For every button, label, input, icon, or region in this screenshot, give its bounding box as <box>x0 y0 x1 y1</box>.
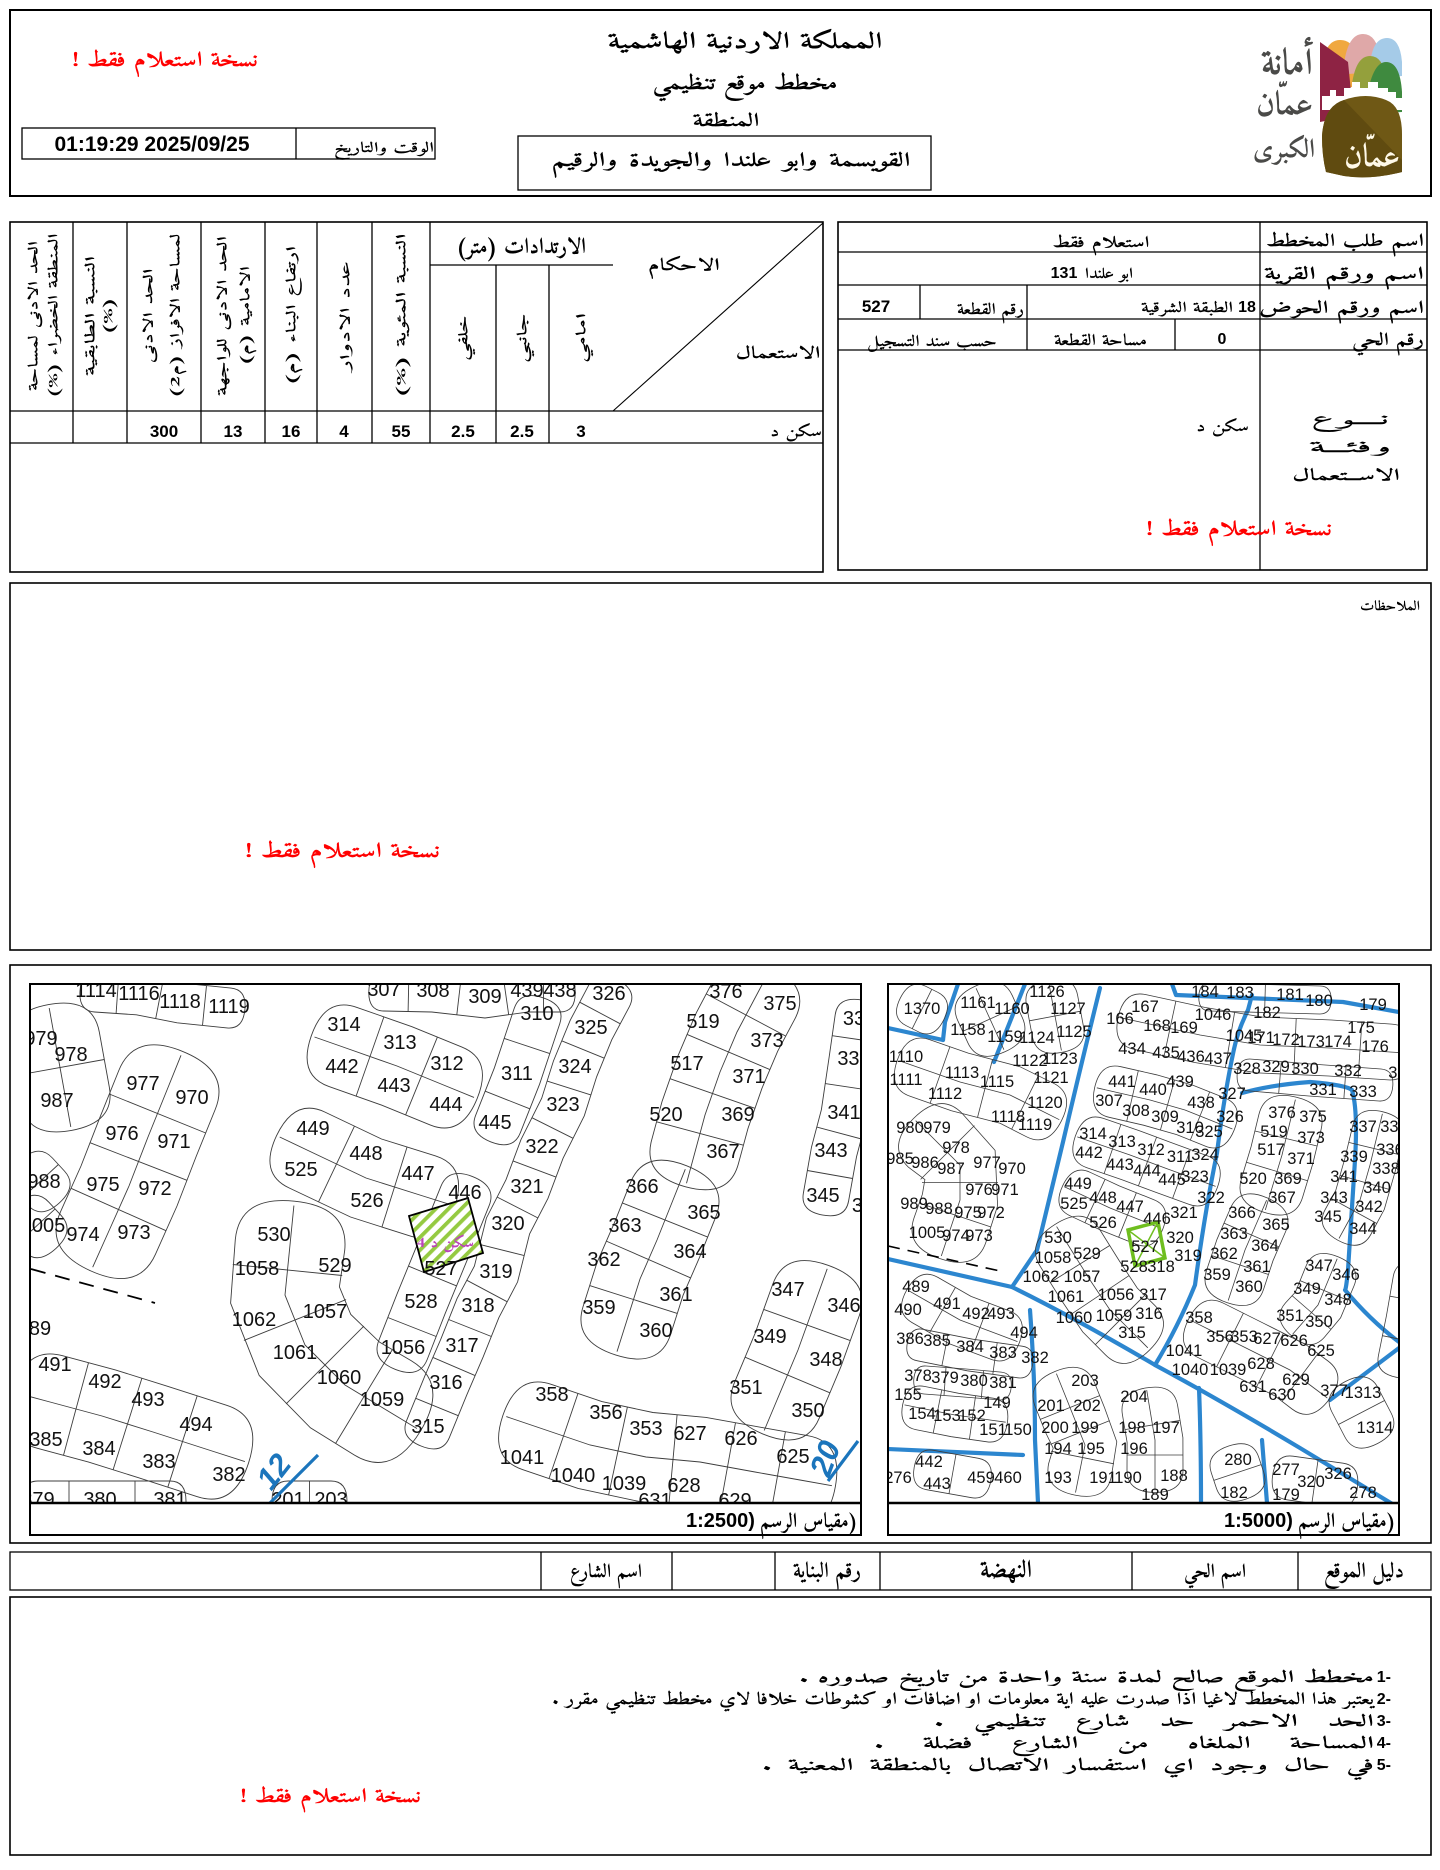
svg-text:309: 309 <box>468 986 501 1008</box>
svg-text:1:2500): 1:2500) <box>686 1510 755 1532</box>
svg-text:184: 184 <box>1191 983 1219 1001</box>
svg-text:327: 327 <box>1218 1085 1246 1103</box>
svg-text:375: 375 <box>763 993 796 1015</box>
svg-text:459: 459 <box>967 1469 995 1487</box>
svg-text:449: 449 <box>1064 1175 1092 1193</box>
svg-text:491: 491 <box>38 1354 71 1376</box>
svg-text:385: 385 <box>29 1429 62 1451</box>
svg-text:314: 314 <box>327 1014 360 1036</box>
svg-text:375: 375 <box>1299 1108 1327 1126</box>
svg-text:3-: 3- <box>1377 1713 1391 1730</box>
svg-text:322: 322 <box>1197 1189 1225 1207</box>
svg-text:337: 337 <box>1349 1118 1377 1136</box>
svg-text:1056: 1056 <box>381 1337 426 1359</box>
svg-text:333: 333 <box>1349 1083 1377 1101</box>
svg-text:316: 316 <box>1135 1305 1163 1323</box>
svg-text:341: 341 <box>1330 1168 1358 1186</box>
svg-text:150: 150 <box>1004 1421 1032 1439</box>
svg-text:525: 525 <box>1060 1195 1088 1213</box>
svg-text:202: 202 <box>1073 1397 1101 1415</box>
svg-text:1040: 1040 <box>1172 1361 1209 1379</box>
svg-text:977: 977 <box>126 1073 159 1095</box>
svg-text:320: 320 <box>491 1213 524 1235</box>
svg-text:347: 347 <box>1305 1257 1333 1275</box>
svg-text:444: 444 <box>429 1094 462 1116</box>
svg-text:976: 976 <box>965 1181 993 1199</box>
svg-text:324: 324 <box>1191 1146 1219 1164</box>
svg-text:1056: 1056 <box>1098 1286 1135 1304</box>
svg-text:1061: 1061 <box>1048 1288 1085 1306</box>
svg-text:196: 196 <box>1120 1440 1148 1458</box>
svg-text:384: 384 <box>82 1438 115 1460</box>
svg-text:166: 166 <box>1106 1010 1134 1028</box>
svg-text:987: 987 <box>40 1090 73 1112</box>
svg-text:631: 631 <box>1239 1378 1267 1396</box>
svg-text:520: 520 <box>649 1104 682 1126</box>
svg-text:987: 987 <box>937 1160 965 1178</box>
svg-text:347: 347 <box>771 1279 804 1301</box>
svg-text:182: 182 <box>1220 1484 1248 1502</box>
svg-text:443: 443 <box>923 1475 951 1493</box>
svg-text:1126: 1126 <box>1029 983 1064 1001</box>
svg-text:530: 530 <box>257 1224 290 1246</box>
svg-text:1125: 1125 <box>1056 1023 1091 1041</box>
svg-text:361: 361 <box>1243 1258 1271 1276</box>
svg-text:526: 526 <box>1089 1214 1117 1232</box>
svg-text:203: 203 <box>1071 1372 1099 1390</box>
svg-text:366: 366 <box>625 1176 658 1198</box>
svg-text:311: 311 <box>1167 1148 1193 1166</box>
svg-text:315: 315 <box>411 1416 444 1438</box>
svg-text:989: 989 <box>900 1195 928 1213</box>
svg-text:310: 310 <box>520 1003 553 1025</box>
svg-text:174: 174 <box>1324 1033 1352 1051</box>
svg-text:189: 189 <box>1141 1486 1169 1504</box>
svg-text:448: 448 <box>349 1143 382 1165</box>
svg-text:312: 312 <box>1137 1141 1165 1159</box>
svg-text:155: 155 <box>894 1386 922 1404</box>
svg-text:358: 358 <box>1185 1309 1213 1327</box>
svg-text:349: 349 <box>753 1326 786 1348</box>
svg-text:365: 365 <box>1262 1216 1290 1234</box>
svg-text:970: 970 <box>998 1160 1026 1178</box>
svg-text:1123: 1123 <box>1042 1050 1077 1068</box>
svg-text:434: 434 <box>1118 1040 1146 1058</box>
svg-text:320: 320 <box>1166 1229 1194 1247</box>
svg-text:360: 360 <box>639 1320 672 1342</box>
svg-text:169: 169 <box>1170 1019 1198 1037</box>
svg-text:1110: 1110 <box>889 1048 923 1066</box>
svg-text:442: 442 <box>1075 1144 1103 1162</box>
svg-text:980: 980 <box>896 1119 924 1137</box>
svg-text:978: 978 <box>942 1139 970 1157</box>
svg-text:195: 195 <box>1077 1440 1105 1458</box>
svg-text:971: 971 <box>991 1181 1019 1199</box>
svg-text:318: 318 <box>461 1295 494 1317</box>
svg-text:436: 436 <box>1177 1048 1205 1066</box>
svg-text:319: 319 <box>1174 1247 1202 1265</box>
svg-text:441: 441 <box>1108 1073 1136 1091</box>
svg-text:190: 190 <box>1114 1469 1142 1487</box>
svg-text:329: 329 <box>1262 1058 1290 1076</box>
svg-text:350: 350 <box>1305 1313 1333 1331</box>
svg-text:191: 191 <box>1089 1469 1117 1487</box>
svg-text:3: 3 <box>576 422 585 441</box>
svg-text:201: 201 <box>1037 1397 1065 1415</box>
svg-text:517: 517 <box>1257 1141 1285 1159</box>
svg-text:492: 492 <box>962 1305 990 1323</box>
svg-text:321: 321 <box>1170 1204 1198 1222</box>
svg-text:318: 318 <box>1147 1258 1175 1276</box>
svg-text:55: 55 <box>392 422 411 441</box>
svg-text:383: 383 <box>989 1344 1017 1362</box>
svg-text:493: 493 <box>131 1389 164 1411</box>
svg-text:179: 179 <box>1272 1486 1300 1504</box>
svg-text:179: 179 <box>1359 996 1387 1014</box>
svg-text:530: 530 <box>1044 1229 1072 1247</box>
svg-text:526: 526 <box>350 1190 383 1212</box>
svg-text:366: 366 <box>1228 1204 1256 1222</box>
svg-text:2.5: 2.5 <box>510 422 534 441</box>
svg-text:1120: 1120 <box>1027 1094 1062 1112</box>
svg-text:439: 439 <box>1166 1073 1194 1091</box>
svg-text:438: 438 <box>1187 1094 1215 1112</box>
svg-text:350: 350 <box>791 1400 824 1422</box>
svg-text:154: 154 <box>908 1405 936 1423</box>
svg-text:626: 626 <box>724 1428 757 1450</box>
svg-text:325: 325 <box>1195 1123 1223 1141</box>
svg-text:489: 489 <box>902 1278 930 1296</box>
svg-text:529: 529 <box>318 1255 351 1277</box>
svg-text:193: 193 <box>1044 1469 1072 1487</box>
svg-text:1-: 1- <box>1377 1669 1391 1686</box>
svg-text:153: 153 <box>933 1407 961 1425</box>
svg-text:376: 376 <box>1268 1104 1296 1122</box>
svg-text:89: 89 <box>29 1318 51 1340</box>
svg-text:359: 359 <box>1203 1266 1231 1284</box>
svg-text:173: 173 <box>1297 1033 1325 1051</box>
svg-text:1061: 1061 <box>273 1342 318 1364</box>
svg-text:308: 308 <box>1122 1102 1150 1120</box>
svg-text:4: 4 <box>339 422 349 441</box>
svg-text:180: 180 <box>1305 992 1333 1010</box>
svg-text:1111: 1111 <box>889 1071 922 1089</box>
svg-text:1124: 1124 <box>1019 1029 1054 1047</box>
svg-text:442: 442 <box>915 1453 943 1471</box>
svg-text:149: 149 <box>983 1394 1011 1412</box>
svg-text:529: 529 <box>1073 1245 1101 1263</box>
svg-text:172: 172 <box>1272 1031 1300 1049</box>
svg-text:353: 353 <box>629 1418 662 1440</box>
svg-text:627: 627 <box>1253 1330 1281 1348</box>
svg-text:324: 324 <box>558 1056 591 1078</box>
svg-text:315: 315 <box>1118 1324 1146 1342</box>
svg-text:322: 322 <box>525 1136 558 1158</box>
svg-text:977: 977 <box>973 1154 1001 1172</box>
svg-text:346: 346 <box>827 1295 860 1317</box>
svg-text:628: 628 <box>1247 1355 1275 1373</box>
svg-text:445: 445 <box>478 1112 511 1134</box>
svg-text:2-: 2- <box>1377 1691 1391 1708</box>
svg-text:313: 313 <box>383 1032 416 1054</box>
svg-text:494: 494 <box>179 1414 212 1436</box>
svg-text:369: 369 <box>1274 1170 1302 1188</box>
svg-text:326: 326 <box>1324 1465 1352 1483</box>
svg-text:525: 525 <box>284 1159 317 1181</box>
svg-text:188: 188 <box>1160 1467 1188 1485</box>
svg-text:319: 319 <box>479 1261 512 1283</box>
svg-text:1119: 1119 <box>208 996 250 1018</box>
svg-text:373: 373 <box>1297 1129 1325 1147</box>
svg-text:362: 362 <box>1210 1245 1238 1263</box>
svg-text:321: 321 <box>510 1176 543 1198</box>
svg-text:338: 338 <box>1372 1160 1400 1178</box>
svg-text:2.5: 2.5 <box>451 422 475 441</box>
svg-text:1057: 1057 <box>1064 1268 1101 1286</box>
svg-text:988: 988 <box>925 1200 953 1218</box>
svg-text:312: 312 <box>430 1053 463 1075</box>
svg-text:313: 313 <box>1108 1133 1136 1151</box>
svg-text:360: 360 <box>1235 1278 1263 1296</box>
svg-text:1058: 1058 <box>235 1258 280 1280</box>
svg-text:972: 972 <box>138 1178 171 1200</box>
svg-text:446: 446 <box>1143 1210 1171 1228</box>
svg-text:01:19:29 2025/09/25: 01:19:29 2025/09/25 <box>55 133 250 156</box>
svg-text:1159: 1159 <box>987 1028 1022 1046</box>
svg-text:1062: 1062 <box>1023 1268 1060 1286</box>
svg-text:985: 985 <box>886 1150 914 1168</box>
svg-text:364: 364 <box>673 1241 706 1263</box>
svg-text:359: 359 <box>582 1297 615 1319</box>
svg-text:343: 343 <box>814 1140 847 1162</box>
svg-text:1059: 1059 <box>1096 1307 1133 1325</box>
svg-text:176: 176 <box>1361 1038 1389 1056</box>
svg-text:442: 442 <box>325 1056 358 1078</box>
svg-text:330: 330 <box>1291 1060 1319 1078</box>
svg-text:349: 349 <box>1293 1280 1321 1298</box>
svg-text:371: 371 <box>1287 1150 1315 1168</box>
svg-text:1059: 1059 <box>360 1389 405 1411</box>
svg-text:970: 970 <box>175 1087 208 1109</box>
svg-text:493: 493 <box>987 1305 1015 1323</box>
svg-text:517: 517 <box>670 1053 703 1075</box>
svg-text:1005: 1005 <box>909 1224 946 1242</box>
svg-text:131: 131 <box>1051 265 1078 282</box>
svg-text:0: 0 <box>1218 331 1227 348</box>
svg-text:311: 311 <box>501 1063 533 1085</box>
svg-text:316: 316 <box>429 1372 462 1394</box>
svg-text:199: 199 <box>1071 1419 1099 1437</box>
svg-text:197: 197 <box>1152 1419 1180 1437</box>
svg-text:449: 449 <box>296 1118 329 1140</box>
svg-text:382: 382 <box>1021 1349 1049 1367</box>
svg-text:4-: 4- <box>1377 1735 1391 1752</box>
svg-text:377: 377 <box>1320 1382 1348 1400</box>
svg-text:1115: 1115 <box>980 1073 1014 1091</box>
svg-text:1040: 1040 <box>551 1465 596 1487</box>
svg-text:5-: 5- <box>1377 1757 1391 1774</box>
svg-text:300: 300 <box>150 422 178 441</box>
svg-text:974: 974 <box>66 1224 99 1246</box>
svg-text:447: 447 <box>401 1163 434 1185</box>
svg-text:361: 361 <box>659 1284 692 1306</box>
svg-text:1314: 1314 <box>1357 1419 1394 1437</box>
svg-text:362: 362 <box>587 1249 620 1271</box>
svg-text:380: 380 <box>960 1372 988 1390</box>
svg-text:13: 13 <box>224 422 243 441</box>
svg-text:527: 527 <box>862 297 890 316</box>
svg-text:171: 171 <box>1247 1029 1275 1047</box>
svg-text:363: 363 <box>1220 1225 1248 1243</box>
svg-text:1058: 1058 <box>1035 1249 1072 1267</box>
svg-text:435: 435 <box>1152 1044 1180 1062</box>
svg-text:384: 384 <box>956 1338 984 1356</box>
svg-text:379: 379 <box>931 1369 959 1387</box>
svg-text:307: 307 <box>1095 1092 1123 1110</box>
svg-text:277: 277 <box>1272 1461 1300 1479</box>
svg-text:345: 345 <box>806 1185 839 1207</box>
svg-text:1370: 1370 <box>904 1000 941 1018</box>
svg-text:309: 309 <box>1151 1108 1179 1126</box>
svg-text:367: 367 <box>706 1141 739 1163</box>
svg-text:348: 348 <box>809 1349 842 1371</box>
svg-text:386: 386 <box>896 1330 924 1348</box>
svg-text:625: 625 <box>1307 1342 1335 1360</box>
svg-text:167: 167 <box>1131 998 1159 1016</box>
svg-text:348: 348 <box>1324 1291 1352 1309</box>
svg-text:440: 440 <box>1139 1081 1167 1099</box>
svg-text:356: 356 <box>589 1402 622 1424</box>
svg-text:1046: 1046 <box>1195 1006 1232 1024</box>
svg-text:280: 280 <box>1224 1451 1252 1469</box>
svg-text:973: 973 <box>965 1227 993 1245</box>
svg-text:1127: 1127 <box>1050 1000 1085 1018</box>
svg-text:975: 975 <box>86 1174 119 1196</box>
svg-text:365: 365 <box>687 1202 720 1224</box>
svg-text:351: 351 <box>729 1377 762 1399</box>
svg-text:626: 626 <box>1280 1332 1308 1350</box>
svg-text:1313: 1313 <box>1345 1384 1382 1402</box>
svg-text:341: 341 <box>827 1102 860 1124</box>
svg-text:331: 331 <box>1309 1081 1337 1099</box>
svg-text:528: 528 <box>1120 1258 1148 1276</box>
svg-text:492: 492 <box>88 1371 121 1393</box>
svg-text:979: 979 <box>923 1119 951 1137</box>
svg-text:183: 183 <box>1226 984 1254 1002</box>
svg-text:339: 339 <box>1340 1148 1368 1166</box>
svg-text:381: 381 <box>989 1374 1017 1392</box>
svg-text:317: 317 <box>1139 1286 1167 1304</box>
svg-text:1161: 1161 <box>960 994 995 1012</box>
svg-text:447: 447 <box>1116 1198 1144 1216</box>
svg-text:444: 444 <box>1133 1162 1161 1180</box>
svg-text:320: 320 <box>1297 1473 1325 1491</box>
svg-text:519: 519 <box>686 1011 719 1033</box>
svg-text:490: 490 <box>894 1301 922 1319</box>
svg-text:363: 363 <box>608 1215 641 1237</box>
svg-text:628: 628 <box>667 1475 700 1497</box>
svg-text:385: 385 <box>923 1332 951 1350</box>
svg-text:181: 181 <box>1276 986 1304 1004</box>
svg-text:344: 344 <box>1349 1220 1377 1238</box>
svg-text:204: 204 <box>1120 1388 1148 1406</box>
svg-text:383: 383 <box>142 1451 175 1473</box>
svg-text:1039: 1039 <box>1210 1361 1247 1379</box>
svg-text:151: 151 <box>979 1421 1007 1439</box>
svg-text:200: 200 <box>1041 1419 1069 1437</box>
svg-text:527: 527 <box>424 1258 457 1280</box>
svg-text:369: 369 <box>721 1104 754 1126</box>
svg-text:346: 346 <box>1332 1266 1360 1284</box>
svg-text:527: 527 <box>1131 1238 1159 1256</box>
svg-text:519: 519 <box>1260 1123 1288 1141</box>
svg-text:986: 986 <box>911 1154 939 1172</box>
svg-text:976: 976 <box>105 1123 138 1145</box>
svg-text:443: 443 <box>377 1075 410 1097</box>
svg-text:1160: 1160 <box>994 1000 1029 1018</box>
svg-text:278: 278 <box>1349 1484 1377 1502</box>
svg-text:1113: 1113 <box>945 1064 979 1082</box>
svg-text:443: 443 <box>1106 1156 1134 1174</box>
svg-text:342: 342 <box>1355 1198 1383 1216</box>
svg-text:325: 325 <box>574 1017 607 1039</box>
svg-text:351: 351 <box>1276 1307 1304 1325</box>
svg-text:1041: 1041 <box>1166 1342 1203 1360</box>
svg-text:358: 358 <box>535 1384 568 1406</box>
svg-text:340: 340 <box>1363 1179 1391 1197</box>
svg-text:328: 328 <box>1233 1060 1261 1078</box>
svg-text:1116: 1116 <box>118 983 160 1005</box>
svg-text:460: 460 <box>994 1469 1022 1487</box>
svg-text:168: 168 <box>1143 1017 1171 1035</box>
svg-text:494: 494 <box>1010 1324 1038 1342</box>
svg-text:314: 314 <box>1079 1125 1107 1143</box>
svg-text:1060: 1060 <box>317 1367 362 1389</box>
svg-text:18: 18 <box>1238 299 1256 316</box>
svg-text:971: 971 <box>157 1131 190 1153</box>
svg-text:1041: 1041 <box>500 1447 545 1469</box>
svg-text:972: 972 <box>977 1204 1005 1222</box>
svg-text:437: 437 <box>1204 1050 1232 1068</box>
svg-text:16: 16 <box>282 422 301 441</box>
svg-text:1158: 1158 <box>950 1021 985 1039</box>
svg-text:1:5000): 1:5000) <box>1224 1510 1293 1532</box>
svg-text:367: 367 <box>1268 1189 1296 1207</box>
svg-text:978: 978 <box>54 1044 87 1066</box>
svg-text:194: 194 <box>1044 1440 1072 1458</box>
svg-text:1060: 1060 <box>1056 1309 1093 1327</box>
svg-text:371: 371 <box>732 1066 765 1088</box>
svg-text:1119: 1119 <box>1018 1116 1052 1134</box>
svg-text:345: 345 <box>1314 1208 1342 1226</box>
svg-text:520: 520 <box>1239 1170 1267 1188</box>
svg-text:332: 332 <box>1334 1062 1362 1080</box>
svg-text:1062: 1062 <box>232 1309 277 1331</box>
svg-text:630: 630 <box>1268 1386 1296 1404</box>
svg-text:446: 446 <box>448 1182 481 1204</box>
svg-text:373: 373 <box>750 1030 783 1052</box>
svg-text:326: 326 <box>592 983 625 1005</box>
svg-text:448: 448 <box>1089 1189 1117 1207</box>
svg-text:1118: 1118 <box>159 991 201 1013</box>
svg-text:317: 317 <box>445 1335 478 1357</box>
svg-text:1121: 1121 <box>1033 1069 1068 1087</box>
svg-text:343: 343 <box>1320 1189 1348 1207</box>
svg-text:491: 491 <box>933 1295 961 1313</box>
svg-text:382: 382 <box>212 1464 245 1486</box>
svg-text:1057: 1057 <box>303 1301 348 1323</box>
svg-text:198: 198 <box>1118 1419 1146 1437</box>
